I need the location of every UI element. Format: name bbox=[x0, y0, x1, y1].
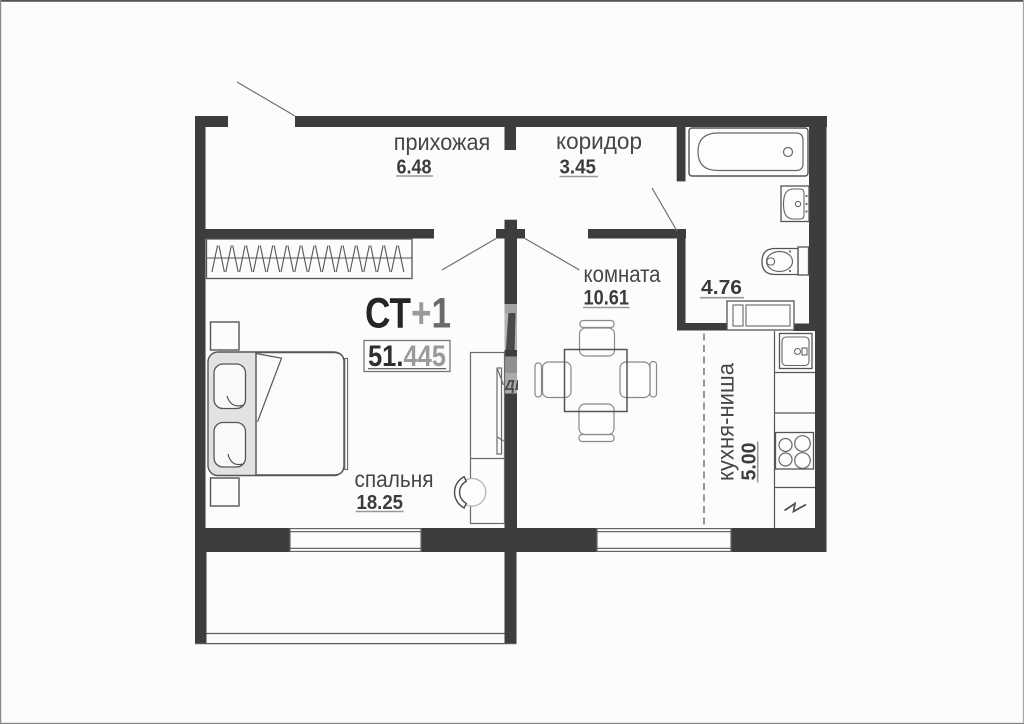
svg-text:10.61: 10.61 bbox=[584, 287, 630, 310]
svg-text:кухня-ниша: кухня-ниша bbox=[713, 363, 739, 481]
svg-text:3.45: 3.45 bbox=[560, 157, 597, 179]
svg-text:комната: комната bbox=[584, 261, 661, 287]
svg-text:спальня: спальня bbox=[355, 466, 434, 492]
svg-text:СТ+1: СТ+1 bbox=[365, 290, 451, 338]
svg-text:4.76: 4.76 bbox=[701, 276, 742, 299]
svg-text:коридор: коридор bbox=[556, 128, 642, 154]
svg-text:прихожая: прихожая bbox=[394, 129, 491, 155]
